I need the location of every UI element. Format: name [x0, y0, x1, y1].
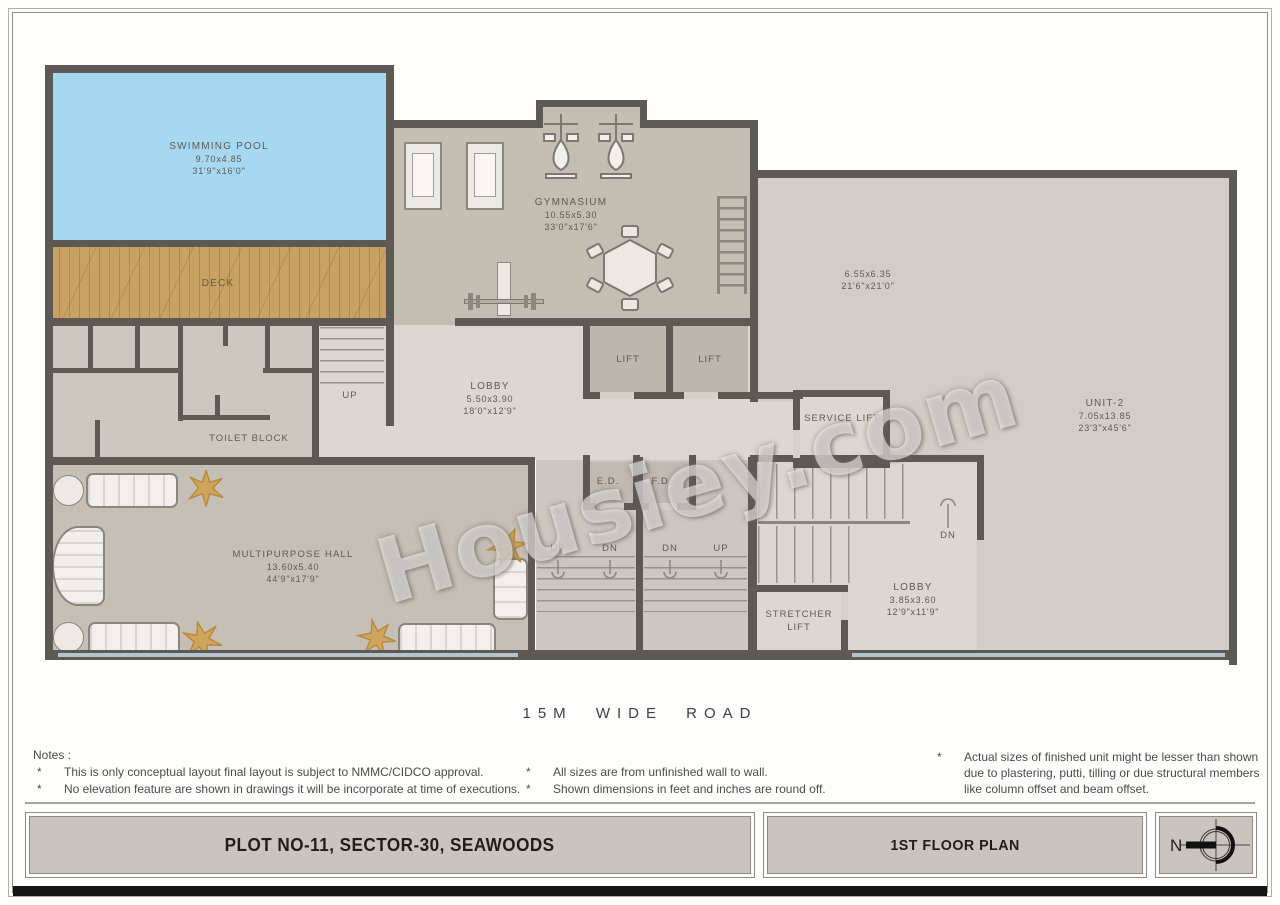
gym-press-machine-icon	[540, 110, 582, 186]
note-bullet: *	[522, 782, 553, 796]
wall-segment	[583, 318, 590, 399]
stair-arrow-down-icon	[551, 560, 565, 584]
shaft-label-fd: F.D.	[642, 476, 682, 487]
wall-segment	[45, 457, 53, 660]
wall-partition	[265, 326, 270, 370]
room-label-swimming-pool: SWIMMING POOL 9.70x4.85 31'9"x16'0"	[139, 140, 299, 177]
room-label-stretcher-lift: STRETCHER LIFT	[758, 608, 840, 634]
note-item: *Actual sizes of finished unit might be …	[933, 750, 1258, 764]
sofa	[86, 473, 178, 508]
barbell-plate	[476, 295, 480, 308]
wall-partition	[95, 420, 100, 460]
wall-segment	[793, 390, 890, 397]
wall-partition	[50, 368, 180, 373]
wall-segment	[455, 318, 758, 326]
wall-partition	[135, 326, 140, 370]
door-opening	[684, 392, 718, 399]
wall-partition	[223, 326, 228, 346]
door-opening	[600, 392, 634, 399]
floor-lobby-ext	[753, 402, 795, 455]
wall-segment	[45, 457, 535, 465]
stair-label-dn: DN	[596, 543, 624, 554]
note-item: *No elevation feature are shown in drawi…	[33, 782, 520, 796]
treadmill-icon	[466, 142, 504, 210]
wall-bars-icon	[717, 196, 747, 294]
gym-press-machine-icon	[595, 110, 637, 186]
note-item: *Shown dimensions in feet and inches are…	[522, 782, 826, 796]
round-table	[53, 475, 84, 506]
wall-segment	[394, 120, 543, 128]
window-glazing	[852, 653, 1225, 657]
wall-segment	[793, 461, 890, 468]
stair-arrow-down-icon	[663, 560, 677, 584]
wall-segment	[977, 455, 984, 540]
door-opening	[596, 503, 624, 510]
room-label-lift-1: LIFT	[598, 354, 658, 365]
stair-label-dn: DN	[656, 543, 684, 554]
wall-segment	[689, 455, 696, 510]
plant-icon	[187, 469, 225, 507]
wall-segment	[750, 455, 757, 660]
note-bullet: *	[933, 750, 964, 764]
room-label-open-area: 6.55x6.35 21'6"x21'0"	[808, 268, 928, 292]
wall-segment	[312, 325, 319, 465]
room-label-toilet-block: TOILET BLOCK	[189, 433, 309, 444]
wall-partition	[178, 415, 270, 420]
wall-segment	[45, 65, 394, 73]
shaft-label-ed: E.D.	[588, 476, 628, 487]
north-compass-icon: N	[1160, 817, 1252, 873]
room-label-lobby-unit: LOBBY 3.85x3.60 12'9"x11'9"	[853, 581, 973, 618]
wall-segment	[45, 65, 53, 465]
wall-segment	[536, 100, 647, 107]
stair-railing	[758, 521, 910, 524]
stair-label-dn: DN	[932, 530, 964, 541]
notes-heading: Notes :	[33, 748, 71, 762]
wall-segment	[633, 455, 640, 510]
door-opening	[793, 430, 800, 458]
floor-plan-page: SWIMMING POOL 9.70x4.85 31'9"x16'0" DECK…	[0, 0, 1280, 905]
room-label-lobby-main: LOBBY 5.50x3.90 18'0"x12'9"	[430, 380, 550, 417]
stair-label-up: UP	[707, 543, 735, 554]
stair-label-up: UP	[335, 390, 365, 401]
curved-sofa	[52, 526, 105, 606]
plot-title: PLOT NO-11, SECTOR-30, SEAWOODS	[225, 835, 555, 856]
title-block-plot: PLOT NO-11, SECTOR-30, SEAWOODS	[25, 812, 755, 878]
bench-press-icon	[497, 262, 511, 316]
page-bottom-bar	[13, 886, 1267, 896]
wall-segment	[750, 170, 1237, 178]
svg-text:N: N	[1170, 836, 1182, 855]
room-label-multipurpose-hall: MULTIPURPOSE HALL 13.60x5.40 44'9"x17'9"	[228, 548, 358, 585]
room-label-service-lift: SERVICE LIFT	[802, 412, 882, 425]
wall-segment	[640, 120, 758, 128]
wall-partition	[263, 368, 317, 373]
road-label: 15M WIDE ROAD	[420, 705, 860, 722]
wall-segment	[45, 240, 394, 247]
stair-arrow-down-icon	[603, 560, 617, 584]
note-item: due to plastering, putti, tilling or due…	[933, 766, 1259, 780]
round-table	[53, 622, 84, 653]
wall-segment	[750, 455, 984, 462]
stair-label-up: UP	[544, 543, 572, 554]
floor-service-lift	[800, 397, 883, 461]
wall-segment	[528, 457, 535, 660]
treadmill-icon	[404, 142, 442, 210]
note-bullet: *	[33, 765, 64, 779]
wall-segment	[1229, 170, 1237, 665]
door-opening	[649, 503, 677, 510]
note-item: like column offset and beam offset.	[933, 782, 1149, 796]
window-glazing	[58, 653, 518, 657]
stair-treads-unit-upper	[758, 464, 908, 519]
wall-segment	[536, 100, 543, 127]
wall-segment	[666, 318, 673, 399]
stair-arrow-up-icon	[939, 494, 957, 528]
stair-treads-left	[320, 327, 384, 389]
wall-segment	[750, 120, 758, 402]
note-item: *This is only conceptual layout final la…	[33, 765, 484, 779]
wall-segment	[45, 318, 394, 326]
title-block-plan: 1ST FLOOR PLAN	[763, 812, 1147, 878]
room-label-unit2: UNIT-2 7.05x13.85 23'3"x45'6"	[1045, 397, 1165, 434]
note-bullet: *	[522, 765, 553, 779]
wall-partition	[88, 326, 93, 370]
room-label-lift-2: LIFT	[680, 354, 740, 365]
wall-partition	[215, 395, 220, 420]
barbell-plate	[531, 293, 536, 310]
section-divider	[25, 802, 1255, 804]
door-opening	[841, 592, 848, 620]
barbell-plate	[468, 293, 473, 310]
title-block-compass: N	[1155, 812, 1257, 878]
plan-title: 1ST FLOOR PLAN	[890, 837, 1019, 854]
stair-arrow-down-icon	[714, 560, 728, 584]
wall-partition	[178, 326, 183, 421]
note-bullet: *	[33, 782, 64, 796]
room-label-gymnasium: GYMNASIUM 10.55x5.30 33'0"x17'6"	[511, 196, 631, 233]
wall-segment	[750, 585, 848, 592]
room-label-deck: DECK	[168, 277, 268, 290]
barbell-plate	[524, 295, 528, 308]
note-item: *All sizes are from unfinished wall to w…	[522, 765, 768, 779]
stair-treads-unit-lower	[758, 526, 851, 583]
stair-treads-central-2	[644, 556, 747, 612]
gym-table-chairs-icon	[586, 224, 674, 312]
